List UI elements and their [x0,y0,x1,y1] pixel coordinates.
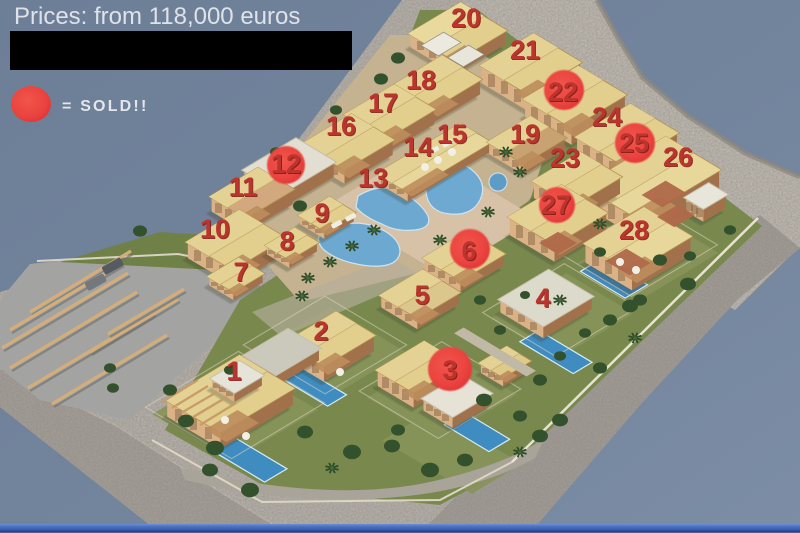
svg-text:19: 19 [510,119,540,149]
svg-text:11: 11 [229,172,258,202]
svg-text:23: 23 [550,143,580,173]
svg-text:5: 5 [414,280,429,310]
svg-text:Prices: from 118,000 euros: Prices: from 118,000 euros [14,3,300,30]
svg-text:6: 6 [461,236,476,266]
svg-text:3: 3 [442,355,457,385]
svg-text:13: 13 [358,163,388,193]
svg-text:= SOLD!!: = SOLD!! [62,98,149,115]
svg-text:12: 12 [271,149,301,179]
svg-text:24: 24 [592,102,622,132]
svg-text:26: 26 [663,142,693,172]
svg-text:1: 1 [226,356,241,386]
svg-text:20: 20 [451,3,481,33]
svg-text:14: 14 [403,132,433,162]
svg-text:15: 15 [437,119,467,149]
svg-text:4: 4 [535,283,550,313]
svg-text:16: 16 [326,111,356,141]
svg-text:2: 2 [313,316,328,346]
svg-text:7: 7 [233,257,248,287]
svg-text:27: 27 [541,190,571,220]
svg-text:10: 10 [200,214,230,244]
svg-text:8: 8 [279,226,294,256]
svg-text:28: 28 [619,215,649,245]
svg-text:17: 17 [368,88,398,118]
svg-text:25: 25 [619,128,649,158]
svg-text:18: 18 [406,65,436,95]
svg-text:9: 9 [314,198,329,228]
svg-text:22: 22 [548,77,578,107]
svg-text:21: 21 [510,35,540,65]
